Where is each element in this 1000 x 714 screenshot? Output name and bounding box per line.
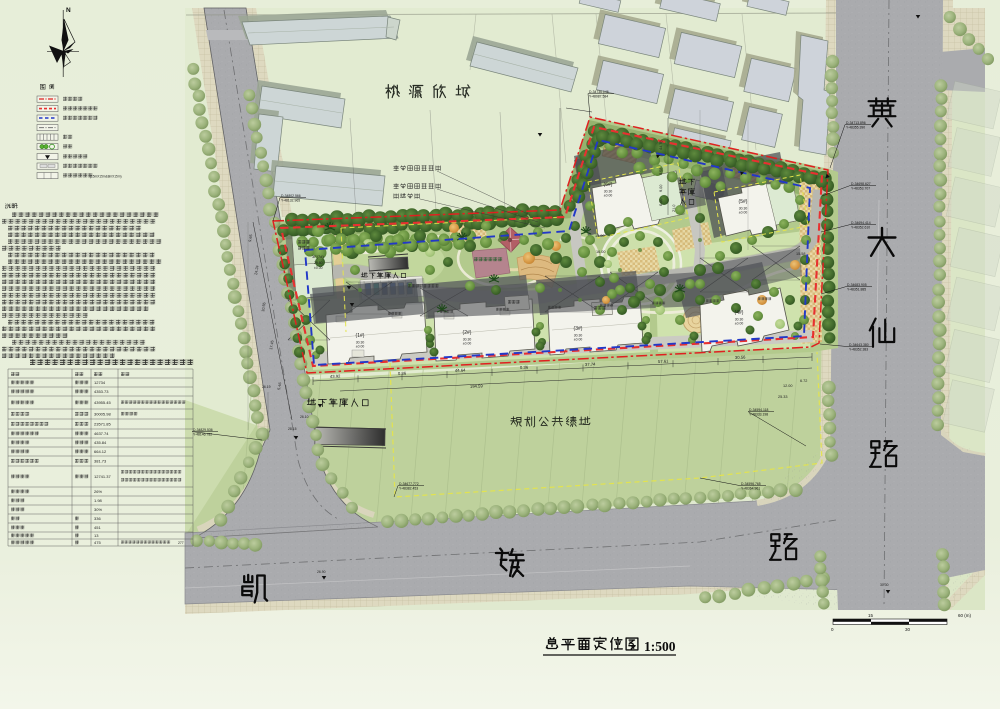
svg-text:0.36: 0.36	[398, 371, 407, 376]
svg-text:435.84: 435.84	[94, 440, 107, 445]
svg-text:(2#): (2#)	[463, 330, 472, 336]
svg-text:Y-48333.198: Y-48333.198	[749, 412, 768, 416]
svg-text:15.58: 15.58	[796, 252, 806, 256]
svg-text:(6#): (6#)	[604, 182, 613, 188]
svg-text:26.90: 26.90	[317, 570, 326, 574]
svg-text:D-34829.536: D-34829.536	[193, 428, 213, 432]
svg-text:Y-48132.965: Y-48132.965	[281, 198, 300, 202]
svg-text:30: 30	[905, 627, 911, 632]
svg-text:25.33: 25.33	[778, 395, 788, 399]
svg-text:Y-48087.584: Y-48087.584	[589, 94, 608, 98]
svg-text:9.00: 9.00	[659, 185, 663, 193]
svg-text:12734: 12734	[94, 380, 106, 385]
svg-text:44.78: 44.78	[659, 140, 663, 150]
svg-text:D-34698.627: D-34698.627	[851, 182, 871, 186]
svg-text:Y-48352.383: Y-48352.383	[849, 347, 868, 351]
svg-text:D-34713.896: D-34713.896	[846, 121, 866, 125]
svg-text:0.36: 0.36	[520, 365, 529, 370]
svg-text:30.56: 30.56	[735, 354, 746, 360]
svg-text:28.15: 28.15	[288, 427, 297, 431]
svg-text:D-34677.772: D-34677.772	[399, 482, 419, 486]
svg-text:15: 15	[868, 613, 874, 618]
svg-text:(5#): (5#)	[739, 199, 748, 205]
svg-text:D-34694.414: D-34694.414	[851, 221, 871, 225]
svg-text:Y-48351.885: Y-48351.885	[847, 287, 866, 291]
svg-text:Y-48352.610: Y-48352.610	[851, 225, 870, 229]
svg-text:D-34594.118: D-34594.118	[749, 408, 768, 412]
svg-text:4637.74: 4637.74	[94, 431, 109, 436]
svg-text:Y-48355.390: Y-48355.390	[846, 125, 865, 129]
svg-text:±0.00: ±0.00	[356, 345, 365, 349]
svg-text:Y-48382.453: Y-48382.453	[399, 486, 418, 490]
svg-text:3F(7#): 3F(7#)	[312, 254, 324, 259]
svg-text:37.74: 37.74	[585, 361, 596, 367]
svg-text:381.73: 381.73	[94, 459, 107, 464]
svg-text:21.0: 21.0	[672, 205, 676, 213]
svg-text:26%: 26%	[94, 489, 102, 494]
svg-text:D-34736.146: D-34736.146	[589, 90, 609, 94]
svg-text:43.92: 43.92	[330, 373, 341, 379]
svg-text:43955.45: 43955.45	[94, 400, 111, 405]
svg-text:(1#): (1#)	[356, 333, 365, 339]
svg-text:1:500: 1:500	[644, 639, 676, 654]
svg-text:194.59: 194.59	[470, 383, 484, 389]
svg-text:8.58: 8.58	[659, 168, 663, 176]
svg-text:Y-48364.961: Y-48364.961	[741, 486, 760, 490]
svg-text:±0.00: ±0.00	[314, 266, 323, 270]
svg-text::: :	[17, 204, 18, 210]
svg-text:6.00: 6.00	[659, 199, 663, 207]
svg-text:664.12: 664.12	[94, 449, 107, 454]
svg-text:23571.85: 23571.85	[94, 422, 111, 427]
svg-text:26.19: 26.19	[262, 385, 271, 389]
svg-text:12.00: 12.00	[783, 384, 793, 388]
svg-text:60 (m): 60 (m)	[958, 613, 972, 618]
svg-text:30%: 30%	[94, 507, 102, 512]
svg-text:29.80: 29.80	[314, 261, 323, 265]
svg-text:N: N	[66, 7, 71, 14]
svg-text:57.61: 57.61	[658, 358, 669, 364]
svg-text:13: 13	[94, 533, 99, 538]
svg-text:277: 277	[178, 541, 184, 545]
svg-text:30.30: 30.30	[880, 583, 889, 587]
svg-text:±0.00: ±0.00	[463, 342, 472, 346]
svg-text:(3#): (3#)	[574, 326, 583, 332]
svg-text:±0.00: ±0.00	[574, 338, 583, 342]
svg-text:(4#): (4#)	[735, 310, 744, 316]
svg-text:(15mX15m&8mX15m): (15mX15m&8mX15m)	[90, 175, 122, 179]
svg-text:±0.00: ±0.00	[735, 322, 744, 326]
svg-text:12741.37: 12741.37	[94, 474, 111, 479]
svg-text:4353.73: 4353.73	[94, 389, 109, 394]
svg-text:D-34802.566: D-34802.566	[281, 194, 301, 198]
svg-text:1.98: 1.98	[94, 498, 103, 503]
svg-text:±0.00: ±0.00	[739, 211, 748, 215]
svg-text:16.00: 16.00	[596, 250, 606, 254]
svg-text:D-34596.765: D-34596.765	[741, 482, 761, 486]
svg-text:475: 475	[94, 540, 101, 545]
svg-text:336: 336	[94, 516, 101, 521]
svg-text:6.72: 6.72	[800, 379, 807, 383]
svg-text:30005.98: 30005.98	[94, 412, 111, 417]
svg-text:44.64: 44.64	[455, 367, 466, 373]
svg-text:13.00: 13.00	[595, 234, 605, 238]
svg-text:Y-48353.707: Y-48353.707	[851, 186, 870, 190]
svg-text:D-34683.905: D-34683.905	[847, 283, 867, 287]
svg-text:±0.00: ±0.00	[604, 194, 613, 198]
svg-text:26.10: 26.10	[300, 415, 309, 419]
svg-text:D-34643.380: D-34643.380	[849, 343, 869, 347]
svg-text:451: 451	[94, 525, 101, 530]
